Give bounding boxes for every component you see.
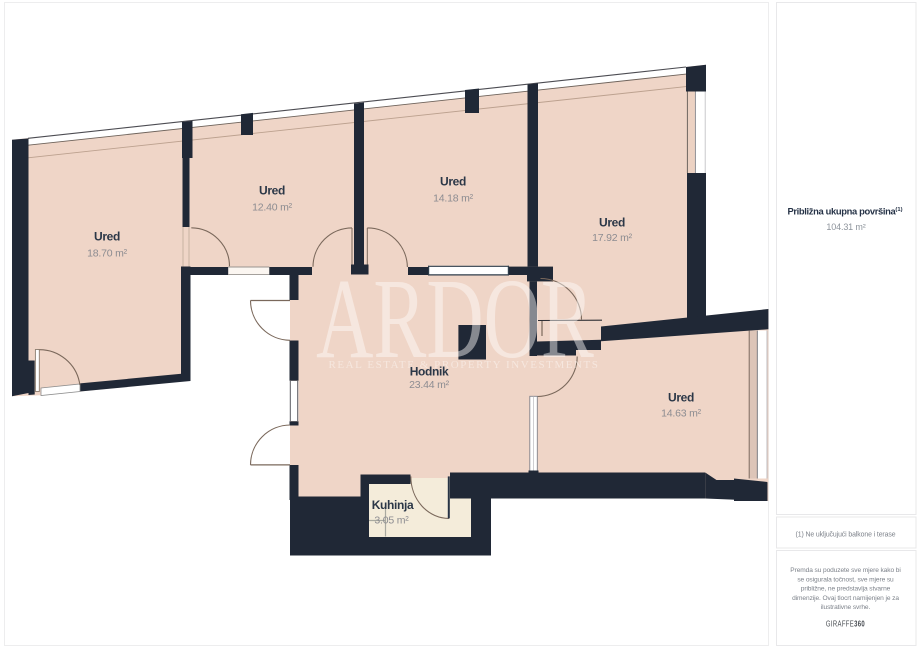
svg-text:Hodnik: Hodnik xyxy=(410,365,449,379)
svg-text:dimenzije. Ovaj tlocrt namijen: dimenzije. Ovaj tlocrt namijenjen je za xyxy=(792,595,899,602)
svg-text:17.92 m²: 17.92 m² xyxy=(592,232,633,244)
svg-text:3.05 m²: 3.05 m² xyxy=(374,515,409,527)
svg-text:Premda su poduzete sve mjere k: Premda su poduzete sve mjere kako bi xyxy=(790,567,901,574)
svg-text:ilustrativne svrhe.: ilustrativne svrhe. xyxy=(821,604,871,611)
svg-text:Ured: Ured xyxy=(668,391,694,405)
svg-text:GIRAFFE360: GIRAFFE360 xyxy=(826,618,865,628)
svg-text:18.70 m²: 18.70 m² xyxy=(87,248,128,260)
svg-text:Ured: Ured xyxy=(259,184,285,198)
svg-text:Ured: Ured xyxy=(440,175,466,189)
svg-text:104.31 m²: 104.31 m² xyxy=(826,222,865,232)
svg-text:približne, ne predstavlja stva: približne, ne predstavlja stvarne xyxy=(801,586,891,593)
svg-text:Približna ukupna površina(1): Približna ukupna površina(1) xyxy=(787,206,902,217)
svg-text:se osigurala točnost, sve mjer: se osigurala točnost, sve mjere su xyxy=(797,576,894,583)
svg-text:14.18 m²: 14.18 m² xyxy=(433,193,474,205)
svg-text:23.44 m²: 23.44 m² xyxy=(409,379,450,391)
svg-text:(1) Ne uključujući balkone i t: (1) Ne uključujući balkone i terase xyxy=(796,532,896,539)
svg-text:Kuhinja: Kuhinja xyxy=(372,498,414,512)
svg-text:Ured: Ured xyxy=(599,216,625,230)
svg-text:12.40 m²: 12.40 m² xyxy=(252,202,293,214)
svg-text:14.63 m²: 14.63 m² xyxy=(661,408,702,420)
svg-text:Ured: Ured xyxy=(94,230,120,244)
svg-text:REAL ESTATE & PROPERTY INVESTM: REAL ESTATE & PROPERTY INVESTMENTS xyxy=(329,359,600,371)
